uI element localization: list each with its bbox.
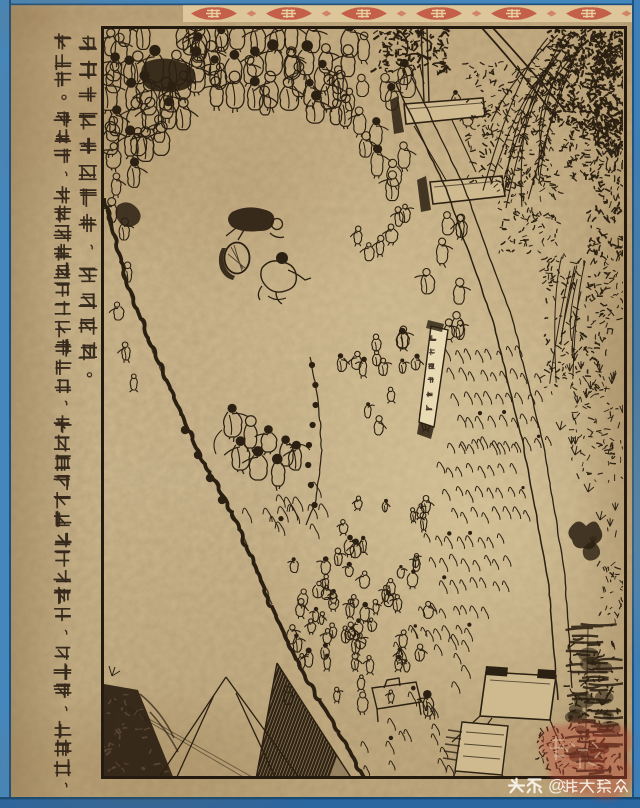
svg-text:@: @ [548, 777, 565, 795]
